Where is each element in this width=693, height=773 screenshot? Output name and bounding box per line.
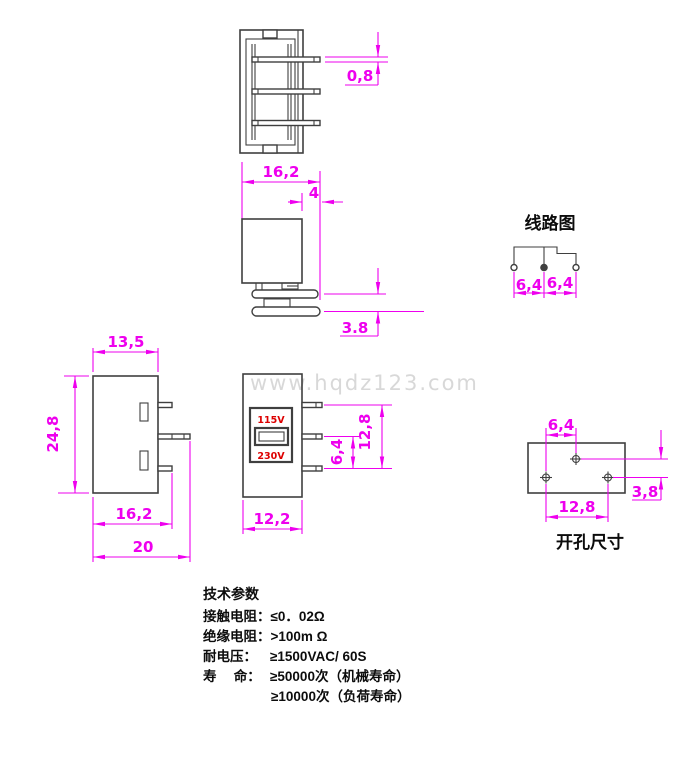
spec-row-label: 绝缘电阻： <box>203 628 271 644</box>
dim-height-front: 24,8 <box>44 376 89 493</box>
cutout-view-title: 开孔尺寸 <box>556 532 624 552</box>
dim-label-pin-pitch: 6,4 <box>328 439 346 466</box>
voltage-label-230: 230V <box>257 451 285 462</box>
spec-row: 绝缘电阻：>100m Ω <box>203 628 328 644</box>
front-view-drawing <box>93 376 190 493</box>
dim-label-long-pin-depth: 20 <box>133 538 154 556</box>
spec-row-value: >100m Ω <box>271 629 328 644</box>
circuit-dim-left: 6,4 <box>516 276 543 294</box>
dim-pin-thickness: 0,8 <box>325 32 388 85</box>
spec-row: 接触电阻：≤0．02Ω <box>203 608 325 624</box>
spec-row: 耐电压：≥1500VAC/ 60S <box>203 648 366 664</box>
side-view-drawing <box>242 219 320 316</box>
dim-label-pin-gap: 3.8 <box>342 319 369 337</box>
dim-pin-gap: 3.8 <box>324 268 424 337</box>
spec-block: 技术参数 接触电阻：≤0．02Ω 绝缘电阻：>100m Ω 耐电压：≥1500V… <box>203 586 410 704</box>
spec-row-label: 耐电压： <box>203 648 257 664</box>
dim-label-pin-thickness: 0,8 <box>347 67 374 85</box>
dim-label-hole-span: 12,8 <box>558 498 595 516</box>
spec-row-value: ≤0．02Ω <box>271 609 325 624</box>
spec-row-label: 接触电阻： <box>203 608 271 624</box>
dim-face-width: 12,2 <box>243 500 302 534</box>
spec-row-label: 寿 命： <box>203 668 261 684</box>
spec-row: ≥10000次（负荷寿命） <box>271 688 410 704</box>
voltage-label-115: 115V <box>257 415 285 426</box>
top-view-drawing <box>240 30 320 153</box>
dim-width-front: 13,5 <box>93 333 158 372</box>
dim-label-pin-protrusion: 4 <box>309 184 319 202</box>
dim-label-face-width: 12,2 <box>253 510 290 528</box>
spec-row-value: ≥10000次（负荷寿命） <box>271 688 410 704</box>
dim-long-pin-depth: 20 <box>93 441 190 562</box>
dim-label-short-pin-depth: 16,2 <box>115 505 152 523</box>
dim-label-width-front: 13,5 <box>107 333 144 351</box>
spec-row: 寿 命：≥50000次（机械寿命） <box>203 668 409 684</box>
dim-label-depth-total: 16,2 <box>262 163 299 181</box>
engineering-drawing-page: www.hqdz123.com 0,8 16,2 <box>0 0 693 773</box>
dim-pin-protrusion: 4 <box>288 184 343 211</box>
dim-label-height-front: 24,8 <box>44 415 62 452</box>
spec-row-value: ≥50000次（机械寿命） <box>270 668 409 684</box>
circuit-diagram: 线路图 6,4 6,4 <box>511 213 579 298</box>
dim-depth-total: 16,2 <box>242 162 320 300</box>
dim-label-pin-span: 12,8 <box>356 413 374 450</box>
dim-label-hole-offset: 6,4 <box>548 416 575 434</box>
dim-label-hole-vertical: 3,8 <box>632 483 659 501</box>
spec-title: 技术参数 <box>203 586 260 602</box>
dim-hole-span: 12,8 <box>546 484 608 522</box>
circuit-diagram-title: 线路图 <box>525 213 576 233</box>
drawing-canvas: www.hqdz123.com 0,8 16,2 <box>0 0 693 773</box>
spec-row-value: ≥1500VAC/ 60S <box>270 649 366 664</box>
circuit-dim-right: 6,4 <box>547 274 574 292</box>
